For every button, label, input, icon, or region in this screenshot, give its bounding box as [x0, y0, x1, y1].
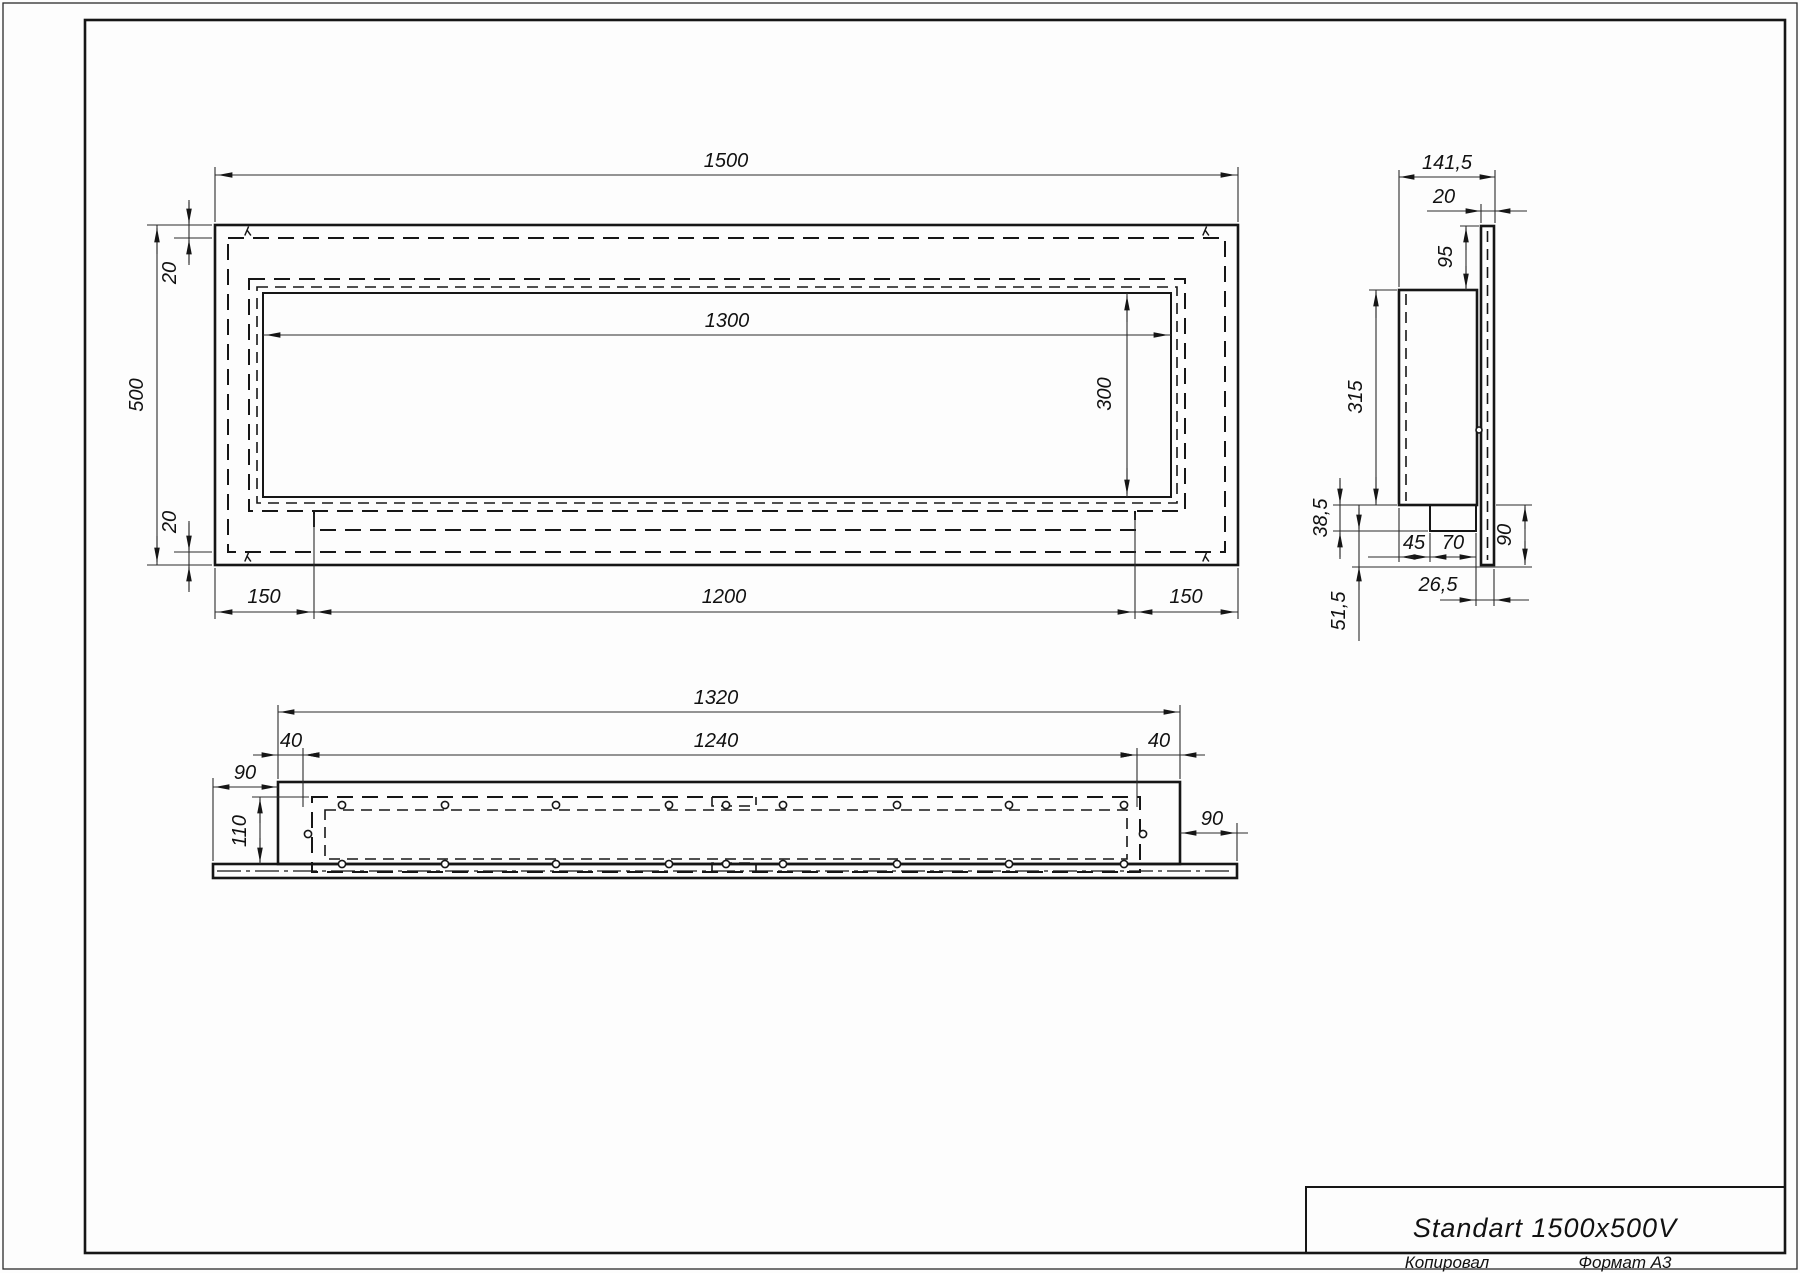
- footer-format-label: Формат А3: [1578, 1253, 1672, 1272]
- dim-front-overall-height: 500: [126, 378, 148, 411]
- dim-front-tray-width: 1200: [702, 586, 747, 608]
- dim-side-panel-thickness: 20: [1432, 186, 1455, 208]
- dim-front-left-offset: 150: [247, 586, 280, 608]
- dim-front-opening-width: 1300: [705, 310, 750, 332]
- dim-side-panel-offset: 26,5: [1418, 574, 1459, 596]
- side-view: 141,5 20 95 315 38,5 51,5 45 70 90 26,5: [1310, 152, 1532, 641]
- dim-front-top-flange: 20: [159, 262, 181, 285]
- dim-front-right-offset: 150: [1169, 586, 1202, 608]
- footer-copied-label: Копировал: [1405, 1253, 1490, 1272]
- dim-side-tray-depth: 70: [1442, 532, 1464, 554]
- dim-bottom-left-margin: 90: [234, 762, 256, 784]
- drawing-canvas: 1500 500 20 20 1300 300 150 1200 150 141…: [0, 0, 1800, 1273]
- title-block-name: Standart 1500x500V: [1413, 1213, 1679, 1243]
- dim-front-overall-width: 1500: [704, 150, 749, 172]
- dim-bottom-depth: 110: [229, 815, 251, 847]
- front-view: 1500 500 20 20 1300 300 150 1200 150: [126, 150, 1238, 619]
- drawing-page: 1500 500 20 20 1300 300 150 1200 150 141…: [0, 0, 1800, 1273]
- bottom-view: 1320 1240 40 40 90 110 90: [213, 687, 1248, 878]
- dim-side-shelf-inset: 45: [1403, 532, 1426, 554]
- drawing-frame: [3, 3, 1797, 1269]
- title-block: Standart 1500x500V Копировал Формат А3: [1306, 1187, 1785, 1272]
- dim-side-bottom-height: 51,5: [1328, 591, 1350, 631]
- dim-side-body-height: 315: [1345, 379, 1367, 413]
- panel-hole-icon: [1476, 427, 1482, 433]
- dim-side-shelf-height: 38,5: [1310, 498, 1332, 538]
- dim-bottom-inner-width: 1240: [694, 730, 739, 752]
- dim-front-opening-height: 300: [1094, 377, 1116, 410]
- dim-side-overall-depth: 141,5: [1422, 152, 1473, 174]
- mounting-holes: [304, 801, 1146, 867]
- dim-bottom-left-inset: 40: [280, 730, 302, 752]
- dim-bottom-body-width: 1320: [694, 687, 739, 709]
- dim-bottom-right-margin: 90: [1201, 808, 1223, 830]
- dim-side-top-to-body: 95: [1435, 245, 1457, 268]
- dim-front-bottom-flange: 20: [159, 511, 181, 534]
- dim-side-panel-bottom: 90: [1494, 524, 1516, 546]
- dim-bottom-right-inset: 40: [1148, 730, 1170, 752]
